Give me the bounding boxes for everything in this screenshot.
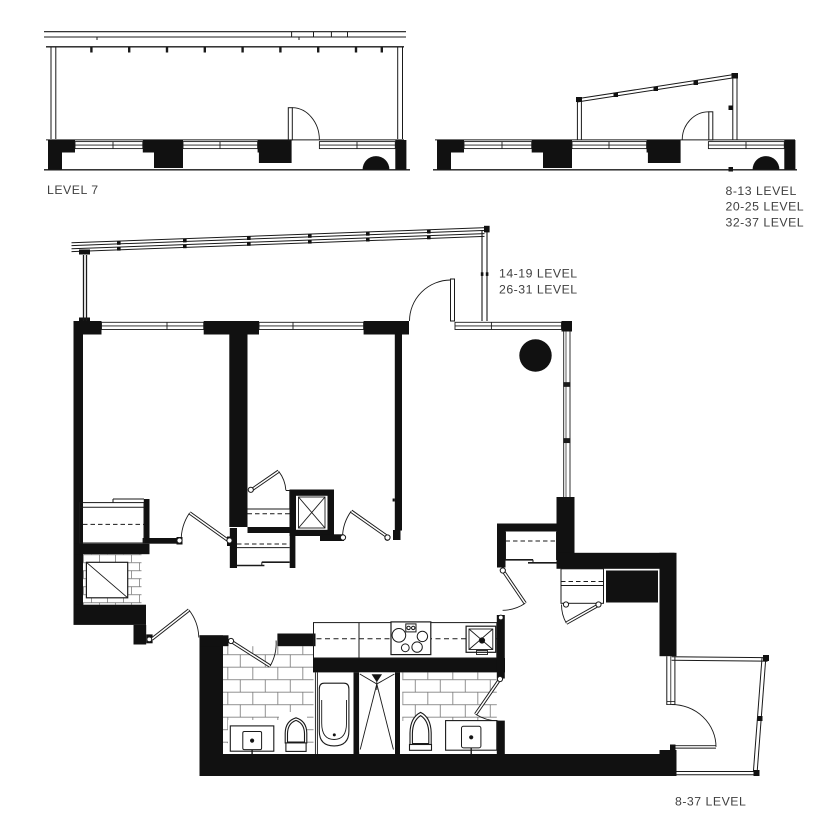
svg-text:14-19 LEVEL: 14-19 LEVEL [499,267,578,281]
svg-text:LEVEL 7: LEVEL 7 [47,183,99,197]
svg-text:8-37 LEVEL: 8-37 LEVEL [675,795,746,809]
svg-text:26-31 LEVEL: 26-31 LEVEL [499,283,578,297]
svg-text:32-37 LEVEL: 32-37 LEVEL [726,215,805,229]
svg-text:20-25 LEVEL: 20-25 LEVEL [726,200,805,214]
svg-text:8-13 LEVEL: 8-13 LEVEL [726,184,797,198]
